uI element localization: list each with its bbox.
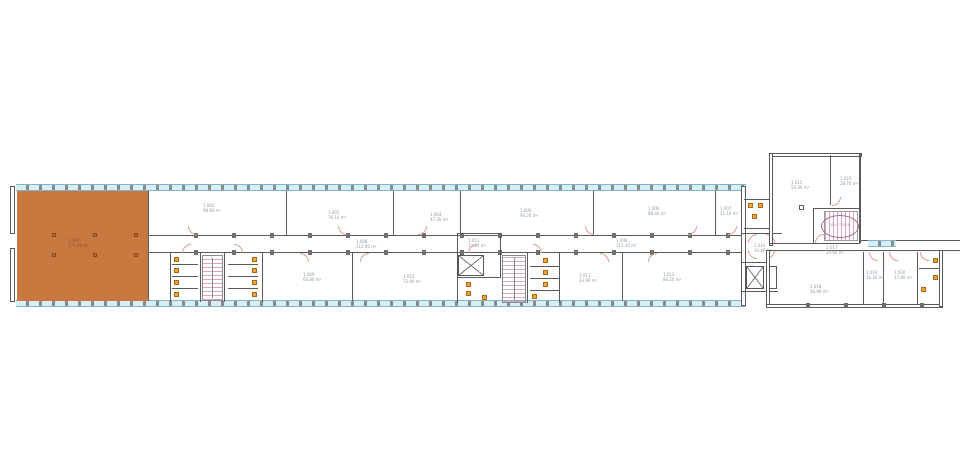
partition-wall (393, 191, 394, 235)
core-wall (457, 233, 501, 234)
partition-wall (352, 252, 353, 301)
door-arc (869, 252, 878, 261)
elevator-core-b (458, 255, 484, 276)
room-label: 1.019 16.20 m² (866, 270, 884, 280)
floor-plan-canvas: 1.001 276.80 m² 1.002 98.60 m² 1.003 76.… (0, 0, 960, 454)
wc-fixture (748, 203, 753, 208)
column-marker (93, 253, 97, 257)
room-area: 47.30 m² (430, 217, 448, 222)
door-arc (889, 252, 898, 261)
room-area: 88.40 m² (648, 211, 666, 216)
partition-wall (863, 252, 864, 305)
wall-piers (160, 233, 740, 238)
exterior-wall (939, 250, 943, 307)
wc-fixture (174, 292, 179, 297)
wc-fixture (252, 257, 257, 262)
wc-fixture (543, 282, 548, 287)
corridor-wall (769, 243, 860, 244)
room-area: 86.20 m² (663, 277, 681, 282)
window-band-top (16, 184, 746, 191)
stall-wall (530, 278, 559, 279)
room-label: 1.005 94.20 m² (520, 208, 538, 218)
exterior-wall (772, 153, 862, 157)
room-area: 28.70 m² (840, 181, 858, 186)
room-area: 54.30 m² (791, 185, 809, 190)
stall-wall (530, 290, 559, 291)
door-arc (832, 197, 841, 206)
column-marker (52, 253, 56, 257)
room-area: 98.60 m² (203, 208, 221, 213)
core-wall (559, 252, 560, 303)
core-wall (200, 252, 201, 302)
partition-wall (917, 252, 918, 305)
connector-wall (742, 291, 778, 292)
stall-wall (228, 264, 258, 265)
wc-fixture (933, 275, 938, 280)
stall-wall (172, 264, 198, 265)
corridor-label: 1.017 24.60 m² (826, 245, 844, 255)
core-wall (224, 252, 225, 302)
exterior-wall (769, 153, 773, 246)
exterior-wall-left-lower (10, 248, 15, 302)
room-label: 1.018 56.90 m² (810, 284, 828, 294)
wc-fixture (174, 268, 179, 273)
wc-fixture (933, 258, 938, 263)
core-wall (262, 252, 263, 302)
core-wall (527, 252, 528, 303)
room-area: 72.60 m² (403, 279, 421, 284)
wc-fixture (543, 258, 548, 263)
core-wall (458, 277, 500, 278)
wc-fixture (758, 203, 763, 208)
window-band-bottom (16, 300, 746, 307)
wc-fixture (921, 287, 926, 292)
wall (148, 191, 149, 301)
wc-fixture (482, 295, 487, 300)
stair-wall (813, 208, 814, 243)
exterior-wall-left-upper (10, 186, 15, 234)
room-label: 1.020 17.80 m² (894, 270, 912, 280)
exterior-wall (766, 250, 770, 307)
partition-wall (286, 191, 287, 235)
room-area: 112.40 m² (356, 244, 377, 249)
stair-label: 18x17.5/28 (830, 223, 850, 227)
wc-fixture (252, 292, 257, 297)
room-label: 1.009 64.80 m² (303, 272, 321, 282)
corridor-wall (766, 250, 960, 251)
column-marker (93, 233, 97, 237)
door-arc (182, 244, 191, 253)
column-marker (799, 205, 804, 210)
room-area: 17.80 m² (894, 275, 912, 280)
room-label: 1.006 88.40 m² (648, 206, 666, 216)
wc-fixture (174, 257, 179, 262)
corridor-label: 1.008 112.40 m² (616, 238, 637, 248)
room-label: 1.010 72.60 m² (403, 274, 421, 284)
door-arc (234, 244, 243, 253)
room-area: 21.10 m² (720, 211, 738, 216)
partition-wall (460, 191, 461, 235)
partition-wall (715, 191, 716, 235)
column-marker (134, 233, 138, 237)
room-label: 1.002 98.60 m² (203, 203, 221, 213)
room-label: 1.003 76.10 m² (328, 210, 346, 220)
stall-wall (228, 276, 258, 277)
room-label: 1.012 86.20 m² (663, 272, 681, 282)
wc-fixture (174, 280, 179, 285)
room-area: 112.40 m² (616, 243, 637, 248)
door-arc (533, 244, 542, 253)
wc-fixture (252, 280, 257, 285)
column-marker (52, 233, 56, 237)
corridor-label: 1.008 112.40 m² (356, 239, 377, 249)
exterior-wall (859, 153, 861, 243)
stall-wall (530, 266, 559, 267)
room-area: 24.60 m² (826, 250, 844, 255)
partition-wall (622, 252, 623, 301)
wc-fixture (532, 294, 537, 299)
core-wall (500, 233, 501, 278)
wall-piers (772, 303, 932, 308)
room-label: 1.007 21.10 m² (720, 206, 738, 216)
wc-fixture (466, 282, 471, 287)
door-arc (920, 252, 929, 261)
room-area: 64.80 m² (303, 277, 321, 282)
room-label: 1.001 276.80 m² (68, 238, 89, 248)
door-arc (748, 250, 757, 259)
room-label: 1.015 54.30 m² (791, 180, 809, 190)
connector-wall (744, 228, 770, 229)
room-label: 1.004 47.30 m² (430, 212, 448, 222)
connector-wall (742, 233, 782, 234)
room-area: 94.20 m² (520, 213, 538, 218)
stair-wall (813, 208, 861, 209)
connector-wall (744, 199, 770, 200)
room-area: 33.90 m² (579, 278, 597, 283)
connector-wall (742, 262, 768, 263)
door-arc (815, 234, 824, 243)
wc-fixture (252, 268, 257, 273)
stall-wall (172, 288, 198, 289)
elevator-connector (746, 266, 764, 289)
stall-wall (172, 276, 198, 277)
core-wall (170, 252, 171, 302)
room-area: 276.80 m² (68, 243, 89, 248)
stair-rail (212, 258, 213, 298)
room-label: 1.016 28.70 m² (840, 176, 858, 186)
column-marker (134, 253, 138, 257)
stall-wall (919, 268, 940, 269)
door-arc (748, 234, 757, 243)
partition-wall (830, 155, 831, 205)
wc-fixture (752, 214, 757, 219)
stall-wall (228, 288, 258, 289)
wc-fixture (543, 270, 548, 275)
room-area: 16.20 m² (866, 275, 884, 280)
room-area: 56.90 m² (810, 289, 828, 294)
room-label: 1.011 33.90 m² (579, 273, 597, 283)
stair-rail (514, 258, 515, 300)
window-band-wing (868, 240, 896, 247)
room-area: 76.10 m² (328, 215, 346, 220)
wc-fixture (466, 291, 471, 296)
